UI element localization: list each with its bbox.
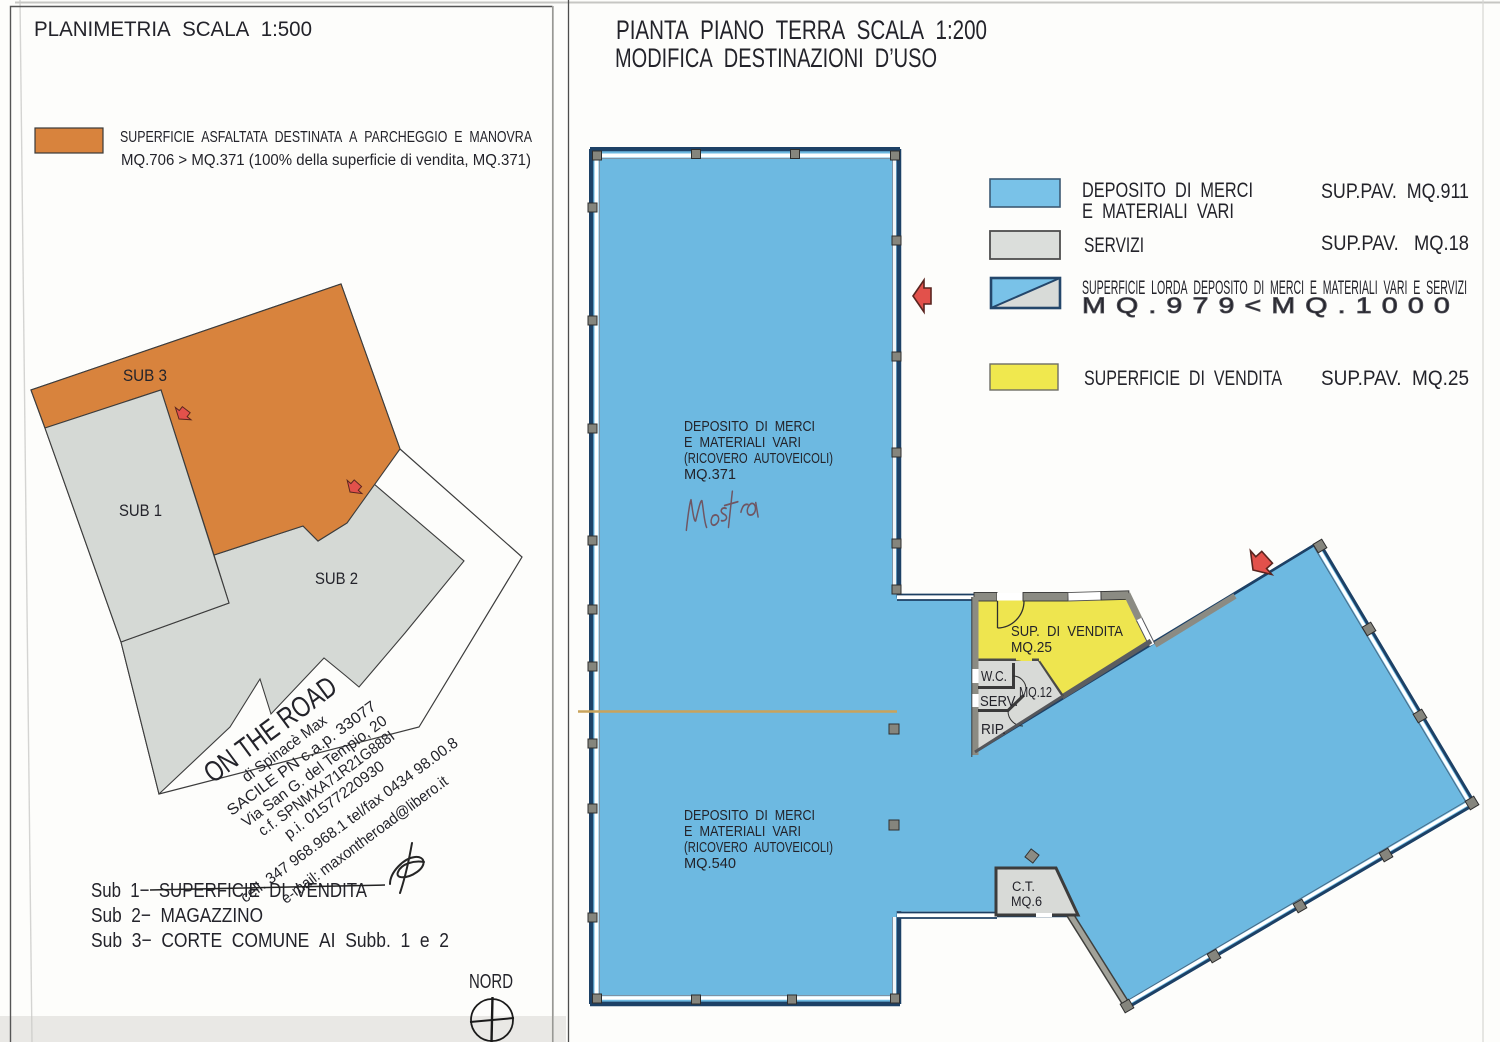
svg-text:SUPERFICIE ASFALTATA DESTINA: SUPERFICIE ASFALTATA DESTINATA A PARCHEG… (120, 129, 533, 146)
svg-text:Sub 1− SUPERFICIE DI VENDI: Sub 1− SUPERFICIE DI VENDITA (91, 879, 367, 902)
svg-text:SUB 3: SUB 3 (123, 366, 167, 385)
svg-text:MQ.12: MQ.12 (1019, 685, 1052, 701)
svg-text:C.T.: C.T. (1012, 879, 1035, 894)
svg-text:SERVIZI: SERVIZI (1084, 234, 1144, 257)
svg-text:SUPERFICIE DI VENDITA: SUPERFICIE DI VENDITA (1084, 367, 1282, 390)
svg-text:MQ.540: MQ.540 (684, 855, 736, 872)
svg-text:MQ.25: MQ.25 (1011, 639, 1052, 656)
svg-text:(RICOVERO AUTOVEICOLI): (RICOVERO AUTOVEICOLI) (684, 450, 833, 467)
svg-text:SERV.: SERV. (980, 693, 1018, 710)
svg-text:DEPOSITO DI MERCI: DEPOSITO DI MERCI (684, 418, 815, 435)
svg-text:E MATERIALI VARI: E MATERIALI VARI (1082, 200, 1234, 223)
svg-text:MQ.706 > MQ.371 (100% della su: MQ.706 > MQ.371 (100% della superficie d… (121, 152, 531, 169)
svg-text:SUP.PAV. MQ.25: SUP.PAV. MQ.25 (1321, 367, 1469, 390)
svg-text:RIP.: RIP. (981, 721, 1006, 738)
svg-text:Sub 2− MAGAZZINO: Sub 2− MAGAZZINO (91, 904, 263, 927)
svg-text:MQ.6: MQ.6 (1011, 894, 1042, 909)
svg-text:E MATERIALI VARI: E MATERIALI VARI (684, 823, 801, 840)
svg-text:E MATERIALI VARI: E MATERIALI VARI (684, 434, 801, 451)
svg-text:SUP.PAV. MQ.18: SUP.PAV. MQ.18 (1321, 232, 1469, 255)
svg-text:Sub 3− CORTE COMUNE AI Su: Sub 3− CORTE COMUNE AI Subb. 1 e 2 (91, 929, 449, 952)
svg-text:W.C.: W.C. (981, 668, 1007, 685)
svg-text:SUB 2: SUB 2 (315, 569, 358, 588)
svg-text:SUP.PAV. MQ.911: SUP.PAV. MQ.911 (1321, 180, 1469, 203)
svg-text:(RICOVERO AUTOVEICOLI): (RICOVERO AUTOVEICOLI) (684, 839, 833, 856)
svg-text:SUB 1: SUB 1 (119, 501, 162, 520)
svg-text:PLANIMETRIA SCALA 1:500: PLANIMETRIA SCALA 1:500 (34, 18, 312, 41)
svg-text:MQ.979<MQ.1000: MQ.979<MQ.1000 (1082, 294, 1460, 318)
svg-text:PIANTA PIANO TERRA SCALA 1: PIANTA PIANO TERRA SCALA 1:200 (616, 15, 987, 45)
svg-text:NORD: NORD (469, 971, 513, 993)
svg-text:MQ.371: MQ.371 (684, 466, 736, 483)
svg-text:MODIFICA DESTINAZIONI D’USO: MODIFICA DESTINAZIONI D’USO (615, 43, 937, 73)
svg-text:DEPOSITO DI MERCI: DEPOSITO DI MERCI (1082, 179, 1253, 202)
svg-text:DEPOSITO DI MERCI: DEPOSITO DI MERCI (684, 807, 815, 824)
svg-text:SUP. DI VENDITA: SUP. DI VENDITA (1011, 623, 1123, 640)
